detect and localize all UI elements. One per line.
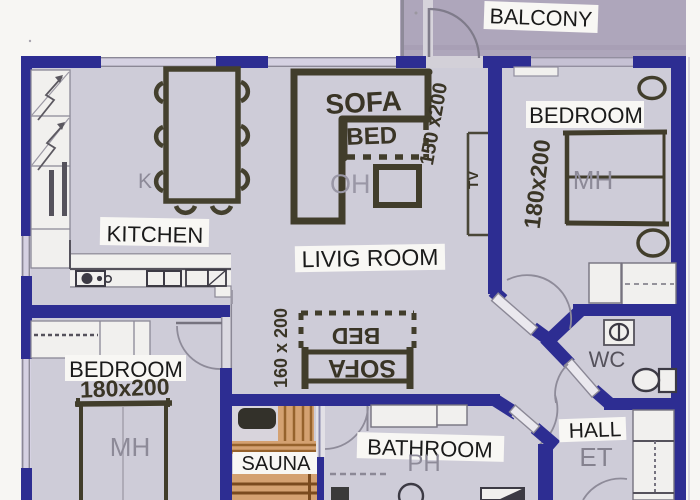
svg-text:PH: PH [407, 450, 440, 477]
svg-text:MH: MH [110, 432, 150, 462]
svg-text:WC: WC [589, 347, 626, 372]
svg-text:KITCHEN: KITCHEN [106, 221, 203, 248]
svg-text:SOFA: SOFA [325, 85, 403, 120]
svg-text:BED: BED [346, 122, 398, 151]
svg-text:BEDROOM: BEDROOM [529, 103, 643, 128]
svg-text:ET: ET [579, 442, 612, 472]
svg-text:180x200: 180x200 [80, 373, 170, 402]
svg-text:BED: BED [332, 323, 381, 349]
svg-text:HALL: HALL [568, 418, 621, 443]
svg-text:SAUNA: SAUNA [242, 453, 312, 475]
svg-text:SOFA: SOFA [328, 354, 396, 382]
svg-text:TV: TV [465, 170, 481, 189]
svg-text:160 x 200: 160 x 200 [271, 308, 291, 388]
svg-text:BALCONY: BALCONY [489, 4, 593, 32]
svg-text:OH: OH [330, 169, 371, 199]
svg-text:MH: MH [573, 165, 613, 195]
svg-text:K: K [138, 170, 152, 193]
svg-text:LIVIG ROOM: LIVIG ROOM [301, 244, 438, 272]
